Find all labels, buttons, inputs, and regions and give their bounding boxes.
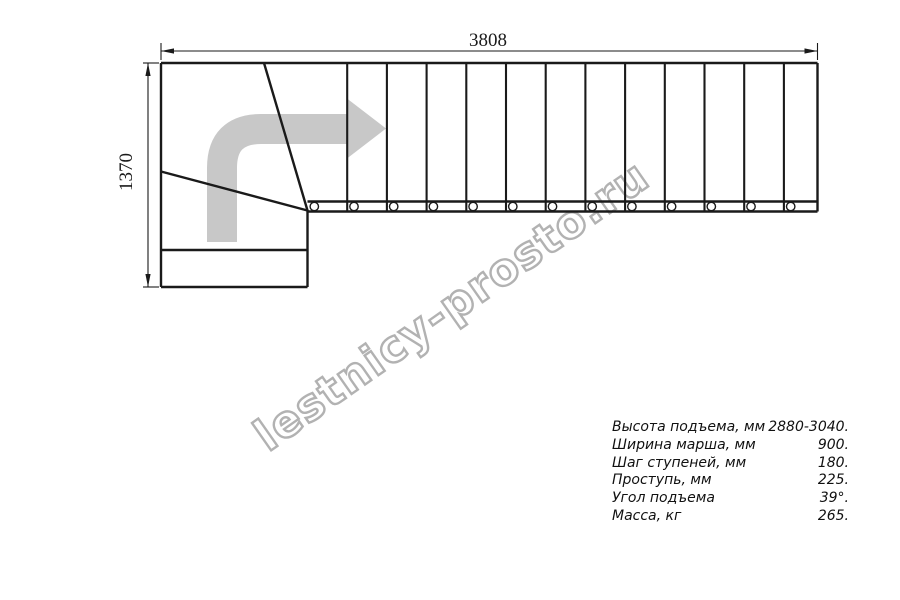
- watermark-text: lestnicy-prosto.ru: [245, 151, 659, 462]
- dimension-left: 1370: [116, 63, 159, 287]
- stringer-bolt-circle: [310, 202, 318, 210]
- turn-right-arrow-icon: [222, 99, 386, 243]
- stringer-bolt-circle: [588, 202, 596, 210]
- dim-arrow-up-icon: [145, 63, 150, 76]
- spec-value: 2880-3040.: [768, 419, 849, 437]
- spec-label: Проступь, мм: [612, 472, 712, 490]
- stringer-bolt-circle: [390, 202, 398, 210]
- spec-label: Ширина марша, мм: [612, 437, 756, 455]
- spec-value: 265.: [818, 508, 849, 526]
- dimension-top: 3808: [161, 30, 818, 60]
- stringer-bolt-circle: [747, 202, 755, 210]
- spec-row: Ширина марша, мм900.: [612, 437, 849, 455]
- dim-arrow-down-icon: [145, 274, 150, 287]
- spec-row: Проступь, мм225.: [612, 472, 849, 490]
- arrow-head: [347, 99, 386, 159]
- spec-label: Масса, кг: [612, 508, 681, 526]
- spec-value: 39°.: [820, 490, 849, 508]
- spec-label: Шаг ступеней, мм: [612, 455, 746, 473]
- stringer-bolt-circle: [787, 202, 795, 210]
- specs-table: Высота подъема, мм2880-3040.Ширина марша…: [612, 419, 849, 526]
- spec-value: 225.: [818, 472, 849, 490]
- spec-row: Масса, кг265.: [612, 508, 849, 526]
- arrow-shaft: [222, 129, 348, 242]
- spec-value: 180.: [818, 455, 849, 473]
- dimension-top-label: 3808: [469, 30, 507, 51]
- spec-label: Высота подъема, мм: [612, 419, 765, 437]
- spec-label: Угол подъема: [612, 490, 715, 508]
- dim-arrow-left-icon: [161, 48, 174, 53]
- spec-value: 900.: [818, 437, 849, 455]
- dimension-left-label: 1370: [116, 153, 137, 191]
- stringer-bolt-circle: [628, 202, 636, 210]
- spec-row: Угол подъема39°.: [612, 490, 849, 508]
- stringer-bolt-circle: [429, 202, 437, 210]
- stringer-bolt-circle: [707, 202, 715, 210]
- dim-arrow-right-icon: [805, 48, 818, 53]
- stringer-bolt-circle: [667, 202, 675, 210]
- spec-row: Высота подъема, мм2880-3040.: [612, 419, 849, 437]
- riser-lines: [347, 63, 784, 212]
- spec-row: Шаг ступеней, мм180.: [612, 455, 849, 473]
- stringer-bolt-circle: [548, 202, 556, 210]
- stringer-bolt-circle: [509, 202, 517, 210]
- stringer-bolt-circle: [469, 202, 477, 210]
- stringer-bolt-circles: [310, 202, 795, 210]
- stringer-bolt-circle: [350, 202, 358, 210]
